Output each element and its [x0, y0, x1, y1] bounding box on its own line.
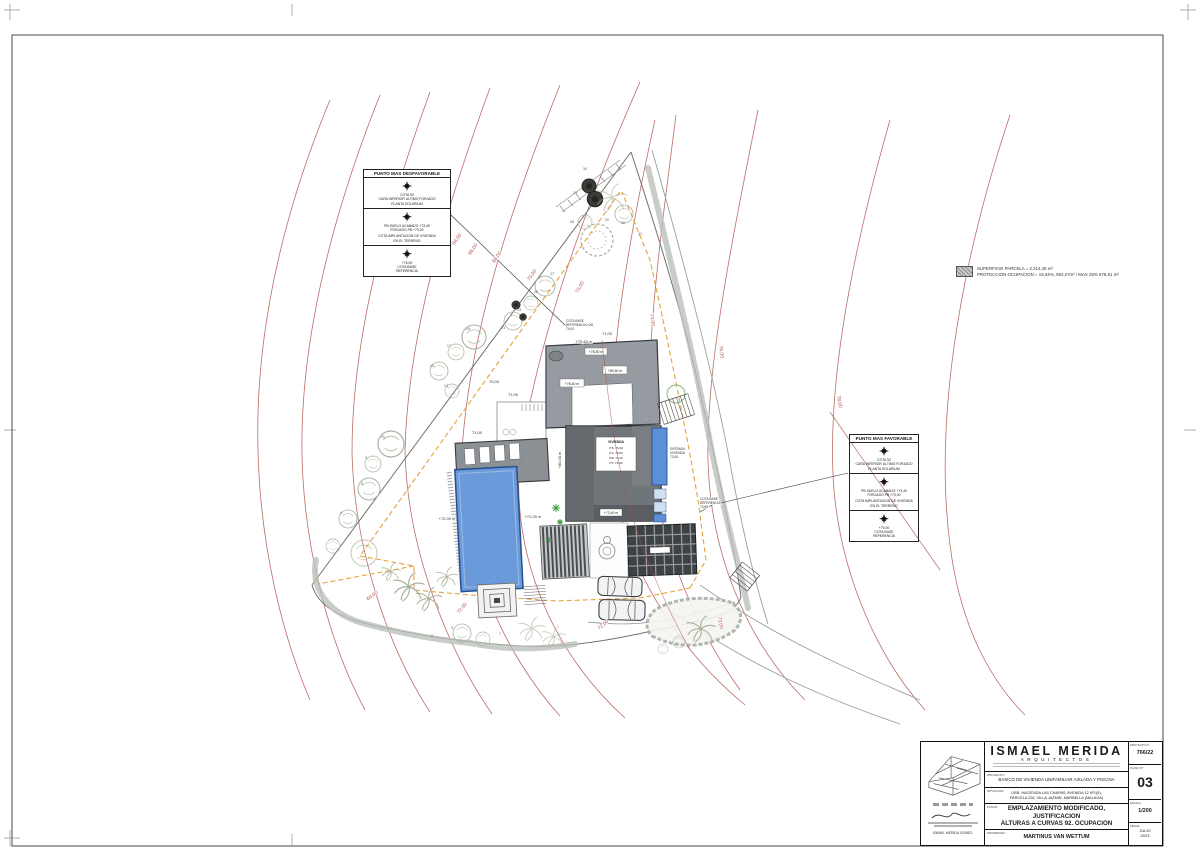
contour-label: 66,00 — [467, 242, 479, 256]
meta-value: 1/200 — [1138, 808, 1152, 814]
louver-deck — [540, 524, 590, 579]
annotation-cell: +75,00 COTA BASE REFERENCIA — [850, 511, 918, 541]
survey-point-icon — [402, 181, 412, 191]
contour-label: 68,00 — [491, 250, 503, 264]
swimming-pool — [449, 467, 523, 594]
meta-value: 2023 — [1141, 834, 1150, 839]
tree-number: 27 — [550, 272, 554, 276]
row-proyecto: PROYECTO: BASICO DE VIVIENDA UNIFAMILIAR… — [985, 772, 1128, 788]
annotation-line: FORJADO PB +73,00 — [365, 228, 449, 232]
annotation-cell: PB SUELO ACABADO +73,40 FORJADO PB +73,0… — [850, 474, 918, 511]
annotation-cell: COTA 92 CARA INFERIOR ULTIMO FORJADO PLA… — [850, 443, 918, 474]
annotation-cell: COTA 92 CARA INFERIOR ULTIMO FORJADO PLA… — [364, 178, 450, 209]
contour-label: 64,00 — [451, 232, 463, 246]
contour-label: 72,00 — [456, 601, 469, 615]
annotation-box-title: PUNTO MAS FAVORABLE — [850, 435, 918, 443]
contour-label: 72,00 — [597, 619, 611, 632]
car-2 — [599, 600, 645, 621]
tree-number: 28 — [570, 220, 574, 224]
tree-number: 23 — [517, 308, 521, 312]
row-propiedad: PROPIEDAD: MARTINUS VAN WETTUM — [985, 830, 1128, 845]
meta-value: 766/22 — [1137, 750, 1154, 756]
brand-name: ISMAEL MERIDA — [985, 744, 1128, 758]
annotation-line: REFERENCIA — [365, 269, 449, 273]
tree-number: 4 — [340, 511, 342, 515]
brand-contact-line — [993, 763, 1120, 769]
northeast-steps — [657, 394, 694, 425]
annotation-line: EN EL TERRENO — [365, 239, 449, 243]
contour-label: 76,00 — [717, 345, 725, 358]
car-1 — [598, 576, 643, 597]
tree-number: 3 — [451, 626, 453, 630]
survey-point-icon — [402, 212, 412, 222]
spot-label: 70,00 — [489, 379, 500, 384]
meta-value: 03 — [1137, 774, 1153, 790]
tree-number: 34 — [583, 167, 587, 171]
patio-fountain — [590, 523, 628, 578]
drawing-sheet: 64,00 66,00 68,00 70,00 73,00 74,00 76,0… — [0, 0, 1200, 848]
vivienda-line: VIVIENDA — [608, 440, 625, 444]
vivienda-line: P.B. 73,40 — [609, 456, 623, 460]
annotation-line: EN EL TERRENO — [851, 504, 917, 508]
contour-label: 74,00 — [648, 313, 656, 326]
brand-header: ISMAEL MERIDA ARQUITECTOS — [985, 742, 1128, 772]
row-value: EMPLAZAMIENTO MODIFICADO, JUSTIFICACION — [987, 805, 1126, 820]
tree-number: 13 — [444, 384, 448, 388]
architect-name: ISMAEL MERIDA GOMEZ — [933, 831, 973, 835]
row-value: ALTURAS A CURVAS 92. OCUPACION — [1001, 820, 1113, 827]
entrada-note: 73,06 — [670, 455, 678, 459]
row-value: BASICO DE VIVIENDA UNIFAMILIAR AISLADA Y… — [998, 777, 1114, 782]
annotation-line: COTA IMPLANTACION DE VIVIENDA — [851, 499, 917, 503]
legend-line-2: PROTECCION OCUPACION = 19,34%, 592,27m² … — [977, 272, 1119, 278]
contour-label: 69,00 — [366, 590, 380, 602]
title-block-main-column: ISMAEL MERIDA ARQUITECTOS PROYECTO: BASI… — [985, 742, 1129, 845]
survey-point-icon — [879, 514, 889, 524]
title-block: ISMAEL MERIDA GOMEZ ISMAEL MERIDA ARQUIT… — [920, 741, 1163, 846]
tree-number: 31 — [638, 232, 642, 236]
row-value: MARTINUS VAN WETTUM — [1023, 834, 1089, 840]
signature — [926, 808, 980, 830]
roof-label: +73,40 m — [604, 511, 618, 515]
vivienda-line: P.T. 72,00 — [609, 461, 622, 465]
tree-number: 9 — [365, 456, 367, 460]
annotation-line: PLANTA SOLARIUM — [851, 467, 917, 471]
spot-label: 71,00 — [472, 430, 483, 435]
cota-base-note: 74,00 — [566, 327, 574, 331]
roof-label: +76,50 m — [589, 350, 603, 354]
contour-label: 73,00 — [574, 280, 586, 294]
tree-number: 7 — [499, 632, 501, 636]
vivienda-label-box: VIVIENDA P.S. 76,40 P.A. 76,00 P.B. 73,4… — [608, 440, 625, 465]
vivienda-line: P.A. 76,00 — [609, 451, 623, 455]
survey-point-icon — [402, 249, 412, 259]
spot-label: +80,00 m — [557, 451, 562, 468]
annotation-cell: PB SUELO ACABADO +73,40 FORJADO PB +73,0… — [364, 209, 450, 246]
row-label: PLANO: — [987, 805, 998, 809]
spot-label: 71,00 — [508, 392, 519, 397]
tree-number: 33 — [573, 191, 577, 195]
spiral-ornament — [477, 583, 517, 618]
tree-number: 30 — [605, 218, 609, 222]
tree-number: 2 — [431, 634, 433, 638]
east-water-feature — [652, 428, 667, 522]
survey-point-icon — [879, 446, 889, 456]
annotation-box-favorable: PUNTO MAS FAVORABLE COTA 92 CARA INFERIO… — [849, 434, 919, 542]
title-block-meta-column: PROYECTO Nº 766/22 PLANO Nº 03 ESCALA 1/… — [1129, 742, 1161, 845]
tree-number: 17 — [447, 344, 451, 348]
annotation-box-desfavorable: PUNTO MAS DESFAVORABLE COTA 92 CARA INFE… — [363, 169, 451, 277]
site-plan-canvas: 64,00 66,00 68,00 70,00 73,00 74,00 76,0… — [0, 0, 1200, 848]
sketch-caption-line — [933, 803, 973, 806]
tree-number: 11 — [381, 435, 385, 439]
row-label: PROPIEDAD: — [987, 831, 1006, 835]
row-situacion: SITUACION: URB. HACIENDA LAS CHAPAS, AVE… — [985, 788, 1128, 804]
annotation-box-title: PUNTO MAS DESFAVORABLE — [364, 170, 450, 178]
meta-label: PROYECTO Nº — [1130, 743, 1149, 747]
tree-number: 25 — [534, 290, 538, 294]
row-plano: PLANO: EMPLAZAMIENTO MODIFICADO, JUSTIFI… — [985, 804, 1128, 829]
annotation-line: FORJADO PB +73,00 — [851, 493, 917, 497]
title-block-sketch-column: ISMAEL MERIDA GOMEZ — [921, 742, 985, 845]
spot-label: +75,63 m — [576, 339, 593, 344]
house-sketch — [924, 745, 982, 801]
legend: SUPERFICIE PARCELA = 2.314,45 m² PROTECC… — [956, 266, 1119, 278]
spot-label: 71,00 — [602, 331, 613, 336]
meta-escala: ESCALA 1/200 — [1129, 800, 1161, 823]
row-label: SITUACION: — [987, 789, 1004, 793]
survey-point-icon — [879, 477, 889, 487]
meta-proyecto-no: PROYECTO Nº 766/22 — [1129, 742, 1161, 765]
row-value: PARCELA 226, VILLA JAZMIN, MARBELLA (MAL… — [1010, 796, 1103, 801]
roof-label: +80,60 m — [608, 369, 622, 373]
contour-label: 78,00 — [835, 395, 843, 409]
tree-number: 21 — [501, 326, 505, 330]
tree-number: 15 — [430, 364, 434, 368]
vivienda-line: P.S. 76,40 — [609, 446, 623, 450]
pergola — [627, 524, 697, 576]
annotation-line: CARA INFERIOR ULTIMO FORJADO — [851, 462, 917, 466]
tree-number: 32 — [621, 221, 625, 225]
cota-base-note: 73,85 — [700, 505, 708, 509]
roof-label: +76,40 m — [565, 382, 579, 386]
tree-number: 5 — [361, 482, 363, 486]
spot-label: +72,00 m — [525, 514, 542, 519]
tree-number: 19 — [466, 327, 470, 331]
annotation-line: PLANTA SOLARIUM — [365, 202, 449, 206]
annotation-line: REFERENCIA — [851, 534, 917, 538]
meta-label: PLANO Nº — [1130, 766, 1143, 770]
row-label: PROYECTO: — [987, 773, 1005, 777]
parcel-hatch-swatch — [956, 266, 973, 277]
spot-label: +72,00 m — [439, 516, 456, 521]
meta-fecha: FECHA JULIO 2023 — [1129, 823, 1161, 845]
meta-plano-no: PLANO Nº 03 — [1129, 765, 1161, 799]
annotation-cell: +75,00 COTA BASE REFERENCIA — [364, 246, 450, 276]
meta-label: ESCALA — [1130, 801, 1141, 805]
meta-label: FECHA — [1130, 824, 1139, 828]
